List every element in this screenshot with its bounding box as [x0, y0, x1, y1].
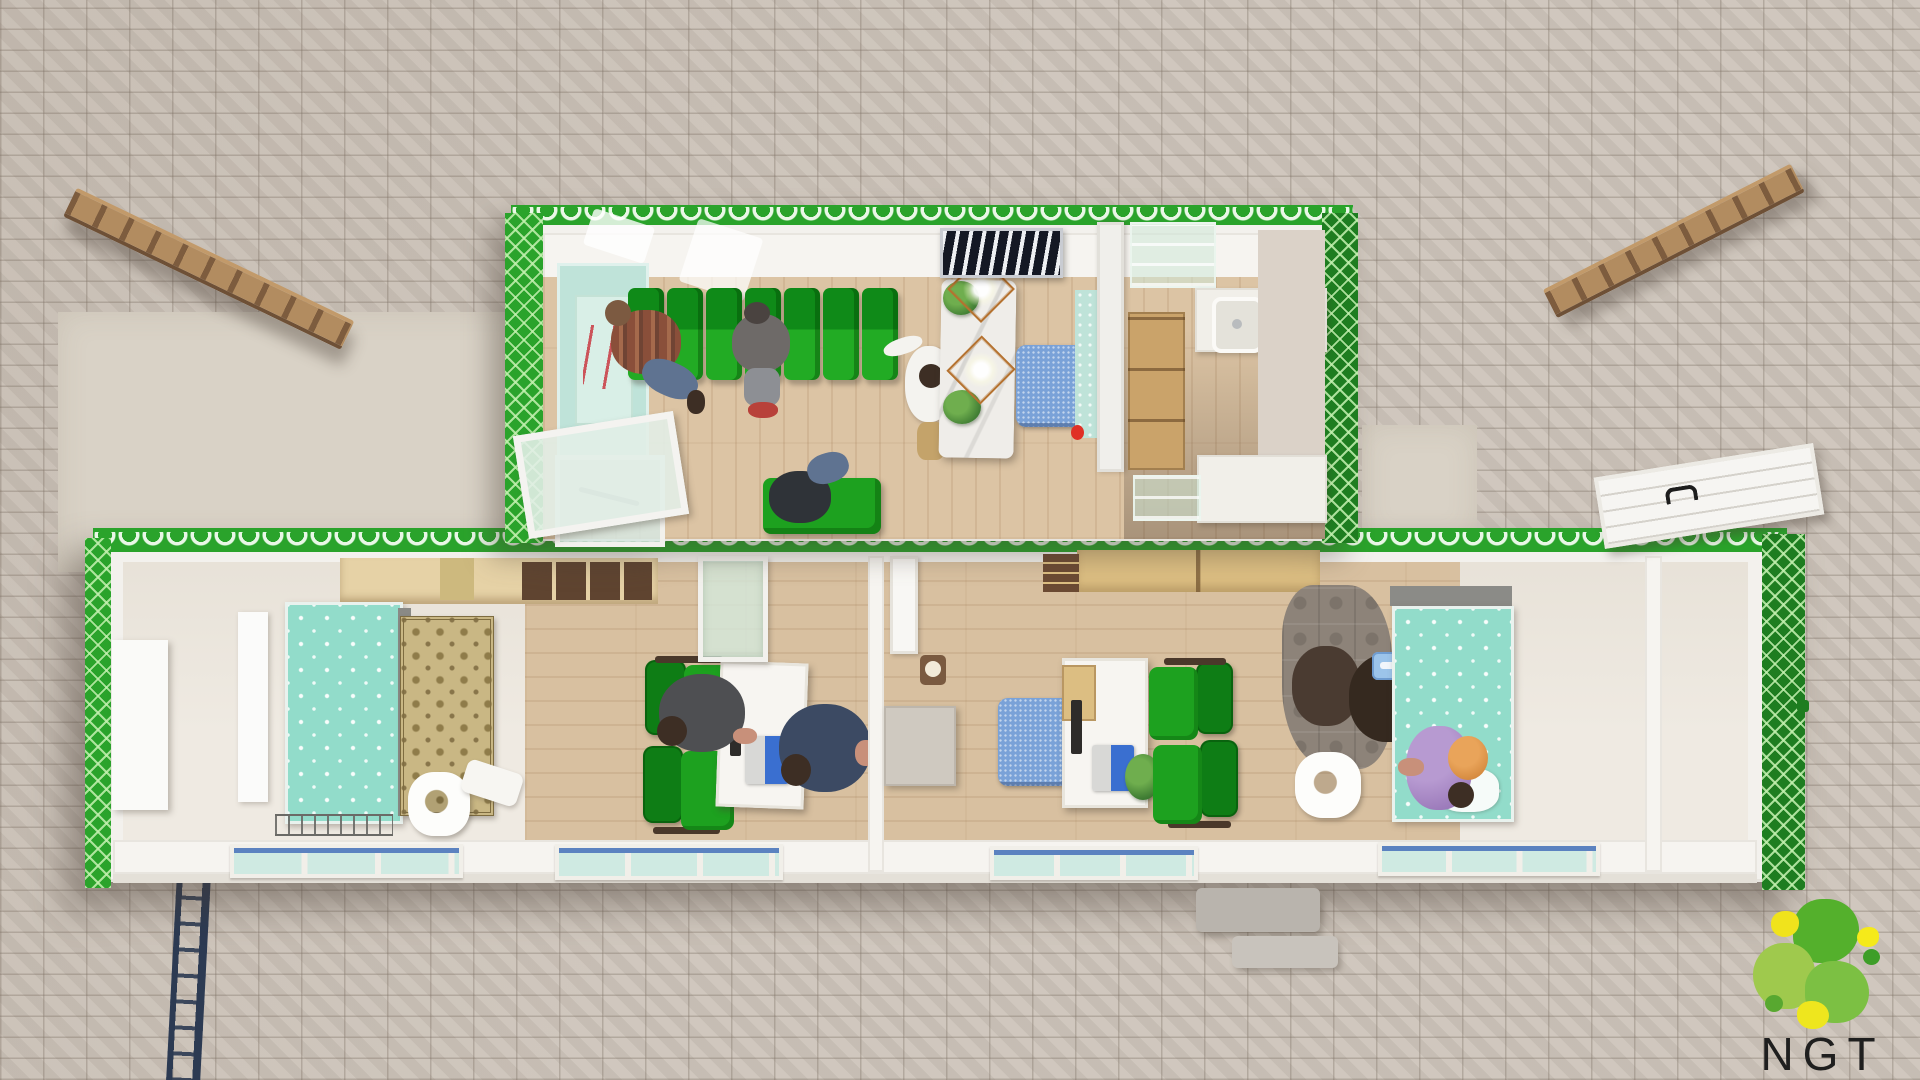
- logo-blob: [1797, 1001, 1829, 1029]
- chair-armrest: [1164, 658, 1226, 665]
- logo-wordmark: NGT: [1735, 1027, 1910, 1080]
- waiting-chair-7: [862, 288, 898, 380]
- window-band-4: [1378, 842, 1600, 876]
- outdoor-table-2: [1232, 936, 1338, 968]
- clinician-hand: [733, 728, 757, 744]
- window-band-3: [990, 846, 1198, 880]
- gray-cabinet: [884, 706, 956, 786]
- paper-dispenser: [920, 655, 946, 685]
- wooden-ramp-right: [1543, 164, 1805, 319]
- person-visitor-plaid: [605, 300, 705, 418]
- glass-shelves-lower: [1133, 475, 1201, 521]
- module-top: [505, 205, 1358, 541]
- wardrobe: [112, 640, 168, 810]
- kitchen-wood-cabinet: [1128, 312, 1185, 470]
- patient-head: [1448, 782, 1474, 808]
- render-stage: NGT: [0, 0, 1920, 1080]
- navy-head: [781, 754, 811, 786]
- overhead-cabinets-right: [1077, 550, 1320, 592]
- monitor-right-desk: [1071, 700, 1082, 754]
- task-chair-right-2: [1148, 740, 1238, 824]
- paper-roll: [925, 661, 941, 677]
- interior-frosted-window: [698, 556, 768, 662]
- logo-blob: [1857, 927, 1879, 947]
- outdoor-table-1: [1196, 888, 1320, 932]
- overhead-cubbies-right: [1043, 554, 1079, 592]
- plaid-head: [605, 300, 631, 326]
- infant-scale-right: [1295, 752, 1361, 818]
- person-visitor-hoodie: [728, 300, 798, 420]
- zebra-wall-art: [940, 228, 1063, 278]
- window-band-1: [230, 844, 463, 878]
- module-bottom: [85, 528, 1805, 890]
- clinician-head: [657, 716, 687, 746]
- overhead-cabinet-mat: [440, 558, 474, 600]
- corridor-wall: [868, 556, 884, 872]
- logo-blob: [1863, 949, 1880, 965]
- ngt-logo: NGT: [1735, 885, 1910, 1080]
- concrete-pad-right: [1362, 425, 1477, 543]
- exam-bed-right-frame: [1390, 586, 1512, 606]
- fire-extinguisher: [1071, 425, 1084, 440]
- logo-blob: [1765, 995, 1783, 1012]
- module-bottom-corner-knob: [1797, 700, 1809, 712]
- bed-foot-rack: [275, 814, 393, 836]
- orange-cushion: [1448, 736, 1488, 780]
- task-chair-right-1: [1145, 662, 1233, 740]
- person-visitor-navy: [773, 696, 877, 800]
- frosted-partition: [1097, 222, 1124, 472]
- waiting-chair-6: [823, 288, 859, 380]
- hoodie-legs: [744, 368, 780, 406]
- chair-armrest: [1168, 821, 1231, 828]
- window-band-2: [555, 844, 783, 880]
- roof-door-handle: [1664, 484, 1698, 505]
- sink-faucet: [1232, 319, 1242, 329]
- mirror-panel: [238, 612, 268, 802]
- exam-bed-left: [285, 602, 403, 824]
- chair-armrest: [653, 827, 720, 834]
- kitchen-sink: [1212, 297, 1263, 353]
- overhead-cubbies-left: [522, 562, 652, 600]
- person-visitor-bench: [767, 453, 853, 533]
- kitchen-lower-counter: [1197, 455, 1327, 523]
- interior-door: [890, 556, 918, 654]
- hoodie-shoes: [748, 402, 778, 418]
- patient-arm: [1398, 758, 1424, 776]
- plaid-shoes: [687, 390, 705, 414]
- kitchen-beige-wall: [1258, 230, 1325, 470]
- module-bottom-left-trim: [85, 538, 111, 888]
- denim-chair-office: [998, 698, 1072, 786]
- hoodie-cap: [744, 302, 770, 324]
- module-bottom-right-trim: [1762, 534, 1805, 890]
- module-top-right-trim: [1322, 213, 1358, 543]
- glass-shelves-upper: [1130, 222, 1216, 288]
- storage-room-wall: [1645, 556, 1662, 872]
- person-clinician-gray: [651, 668, 769, 764]
